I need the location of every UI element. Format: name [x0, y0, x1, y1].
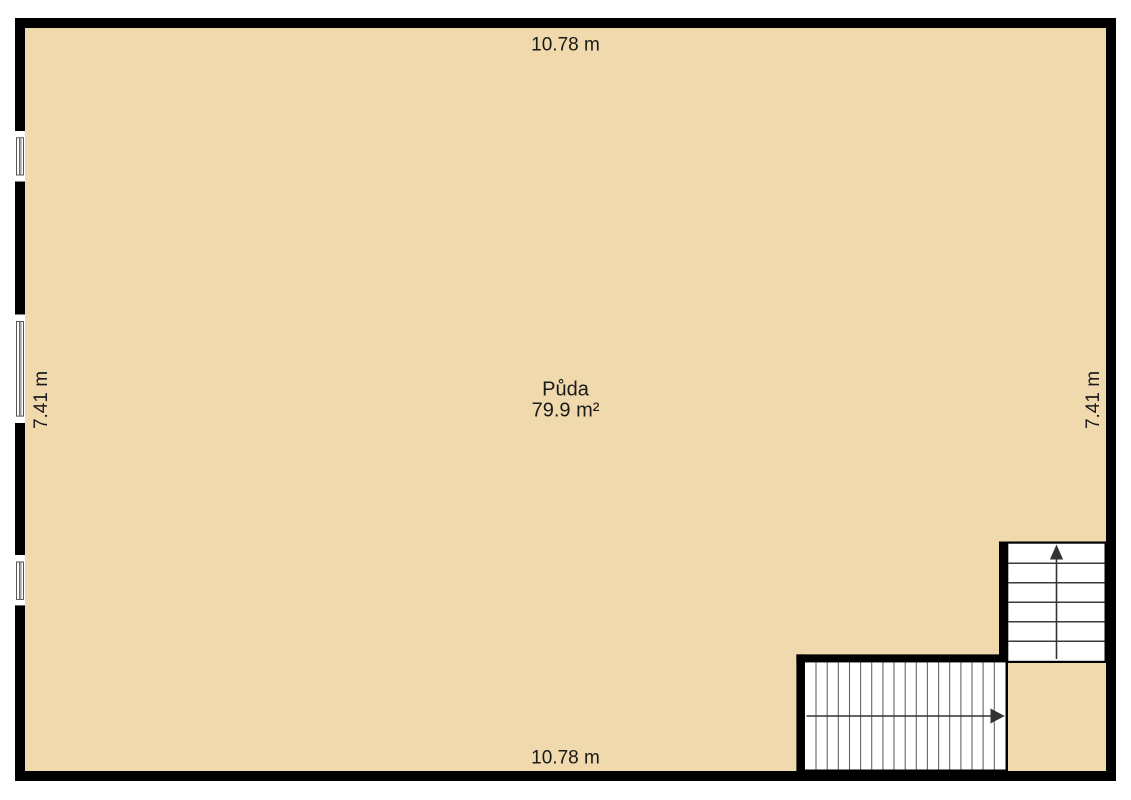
svg-text:10.78 m: 10.78 m — [531, 748, 600, 769]
svg-text:Půda: Půda — [542, 379, 590, 401]
svg-text:7.41 m: 7.41 m — [1083, 371, 1104, 429]
svg-text:7.41 m: 7.41 m — [31, 371, 52, 429]
svg-text:79.9 m²: 79.9 m² — [532, 399, 600, 421]
svg-text:10.78 m: 10.78 m — [531, 35, 600, 56]
